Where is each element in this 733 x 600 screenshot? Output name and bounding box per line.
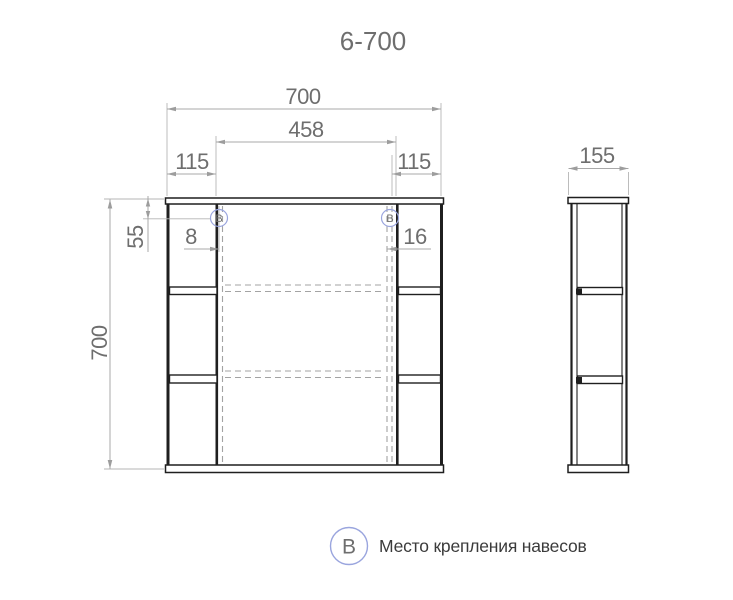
arrowhead	[108, 200, 113, 209]
dim-hinge-right-offset: 16	[388, 224, 432, 251]
hinge-markers: В В	[211, 206, 399, 252]
dim-overall-width-label: 700	[285, 84, 320, 109]
arrowhead	[387, 140, 396, 145]
side-shelf-lower	[578, 376, 623, 384]
side-shelf-upper	[578, 288, 623, 295]
side-shelf-lower-support	[576, 377, 582, 384]
front-view	[166, 198, 444, 473]
dim-hinge-right-offset-label: 16	[403, 224, 427, 249]
drawing-title: 6-700	[340, 26, 407, 56]
hinge-marker-left-letter: В	[215, 213, 222, 225]
dim-right-section: 115	[392, 149, 441, 196]
dim-hinge-left-offset: 8	[184, 224, 219, 251]
dim-door-width: 458	[216, 117, 396, 196]
side-shelf-upper-support	[576, 289, 582, 295]
arrowhead	[146, 211, 150, 219]
arrowhead	[620, 166, 629, 171]
dim-hinge-top-offset-label: 55	[123, 225, 148, 249]
side-top-panel	[568, 198, 629, 204]
front-shelf-left-lower	[170, 375, 218, 383]
arrowhead	[146, 199, 150, 207]
dim-left-section-label: 115	[175, 149, 209, 174]
technical-drawing: 6-700 В В 700	[0, 0, 733, 600]
dim-door-width-label: 458	[288, 117, 323, 142]
front-shelf-right-upper	[399, 287, 441, 295]
front-shelf-left-upper	[170, 287, 218, 295]
hinge-marker-right-letter: В	[386, 213, 393, 225]
dim-depth: 155	[569, 143, 629, 195]
side-bottom-panel	[568, 465, 629, 473]
front-top-panel	[166, 198, 444, 204]
arrowhead	[569, 166, 578, 171]
dim-right-section-label: 115	[397, 149, 431, 174]
dim-depth-label: 155	[579, 143, 614, 168]
legend-marker-letter: В	[342, 536, 356, 559]
drawing-page: 6-700 В В 700	[0, 0, 733, 600]
dim-overall-height-label: 700	[87, 325, 112, 360]
legend: В Место крепления навесов	[331, 528, 587, 565]
front-shelf-right-lower	[399, 375, 441, 383]
arrowhead	[108, 460, 113, 469]
front-bottom-panel	[166, 465, 444, 473]
arrowhead	[432, 172, 441, 177]
hidden-lines	[223, 206, 393, 463]
arrowhead	[216, 140, 225, 145]
dim-hinge-left-offset-label: 8	[185, 224, 197, 249]
side-view	[568, 198, 629, 473]
arrowhead	[432, 107, 441, 112]
legend-caption: Место крепления навесов	[379, 536, 587, 556]
dim-left-section: 115	[167, 149, 216, 176]
arrowhead	[167, 107, 176, 112]
